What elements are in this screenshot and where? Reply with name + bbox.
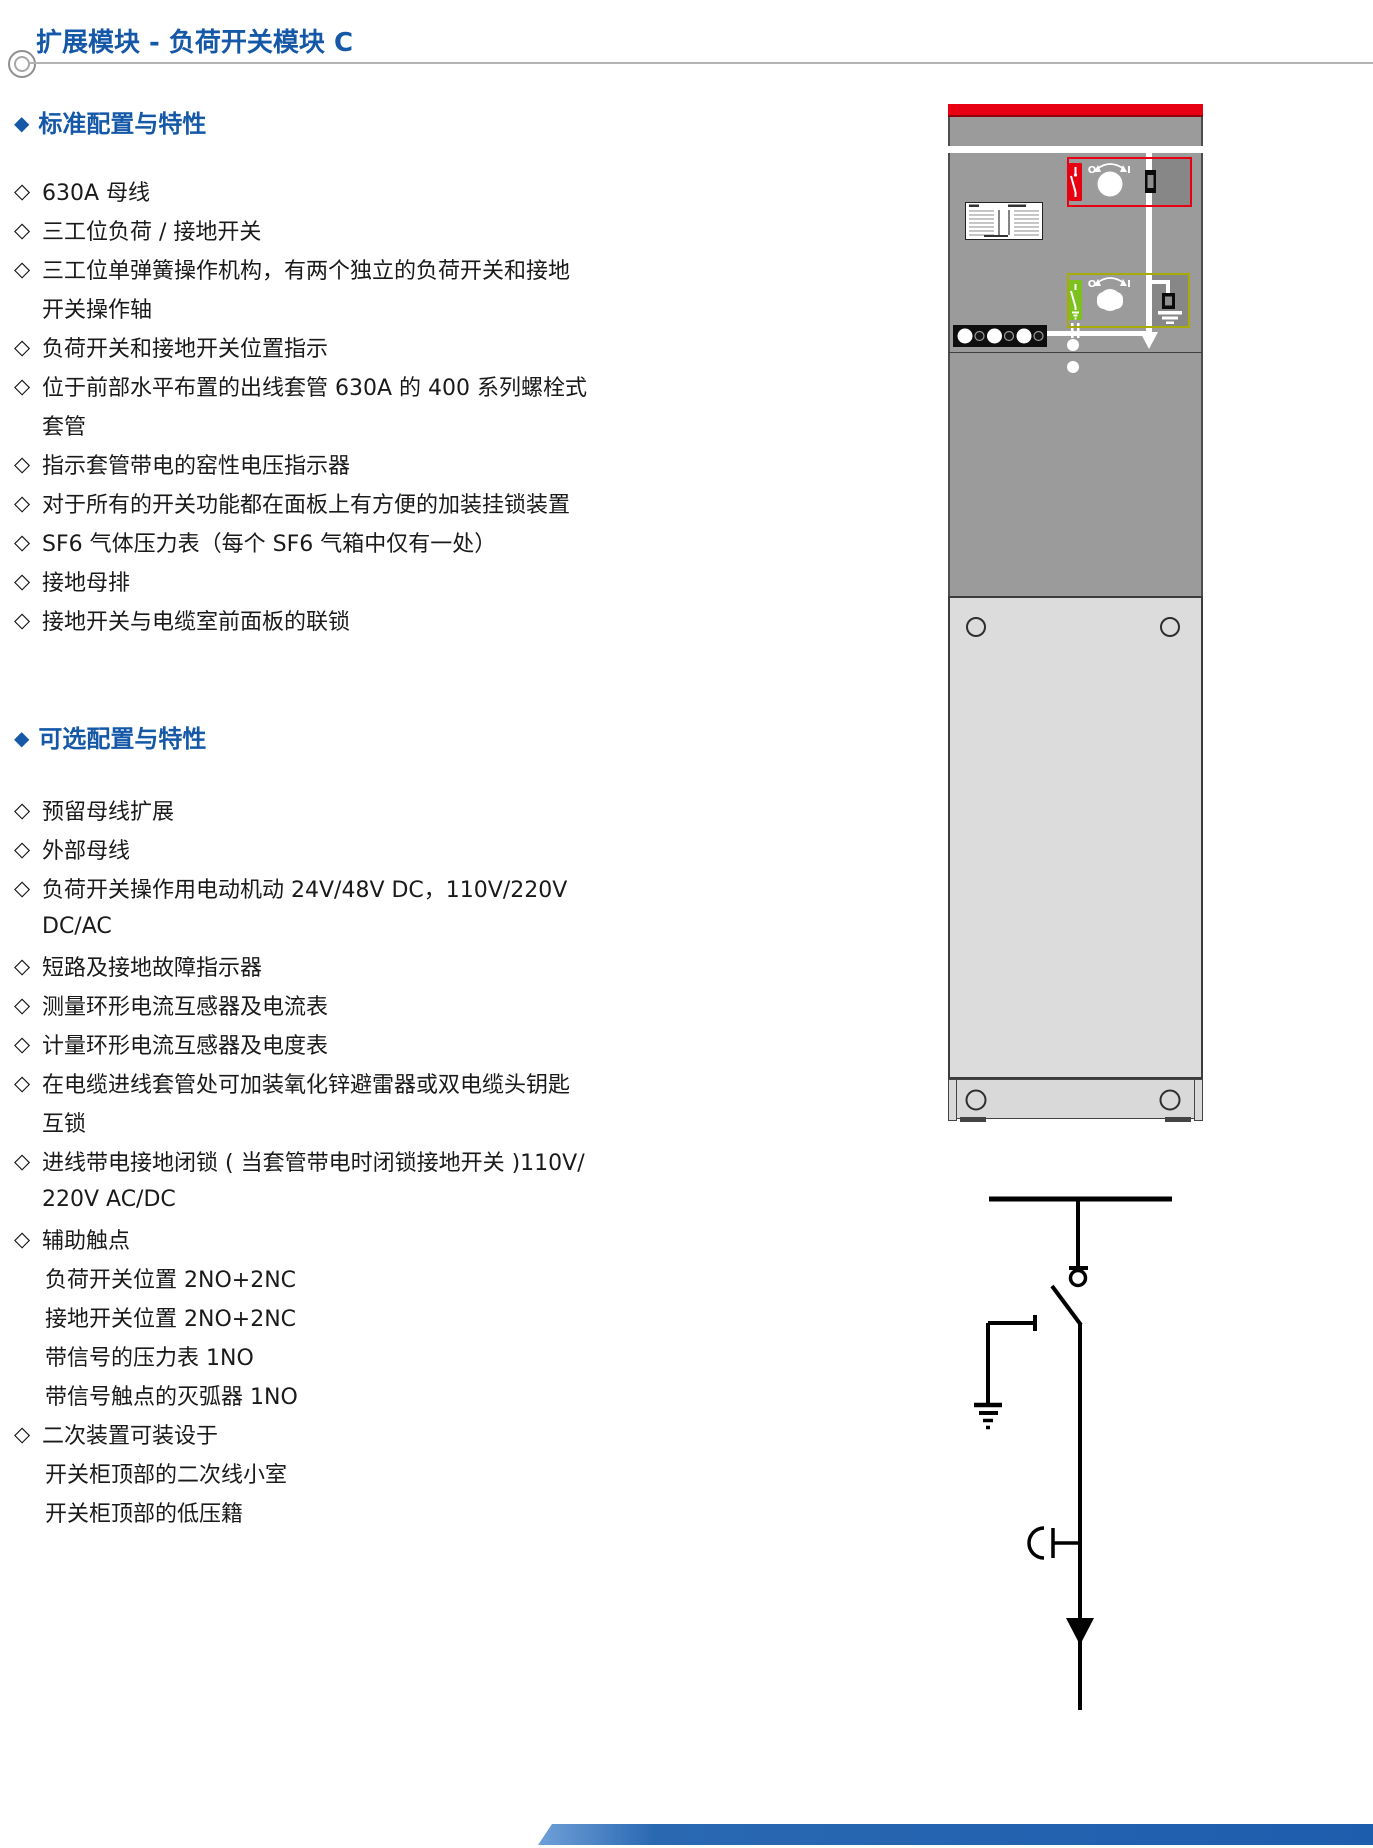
diamond-bullet-icon: ◇ (14, 569, 42, 593)
list-item-continuation: 220V AC/DC (14, 1180, 614, 1219)
list-item-text: 接地开关位置 2NO+2NC (45, 1301, 296, 1333)
list-item: ◇三工位负荷 / 接地开关 (14, 210, 614, 249)
diamond-bullet-icon: ◇ (14, 954, 42, 978)
diamond-bullet-icon: ◇ (14, 993, 42, 1017)
voltage-indicator-symbol (1029, 1528, 1080, 1558)
list-item: ◇指示套管带电的窑性电压指示器 (14, 444, 614, 483)
list-item-text: 带信号触点的灭弧器 1NO (45, 1379, 298, 1411)
diamond-bullet-icon: ◇ (14, 530, 42, 554)
list-subitem: 接地开关位置 2NO+2NC (14, 1297, 614, 1336)
list-item-continuation: 互锁 (14, 1102, 614, 1141)
list-item: ◇接地母排 (14, 561, 614, 600)
optional-feature-list: ◇预留母线扩展 ◇外部母线 ◇负荷开关操作用电动机动 24V/48V DC，11… (14, 790, 614, 1531)
list-item: ◇三工位单弹簧操作机构，有两个独立的负荷开关和接地 (14, 249, 614, 288)
diamond-bullet-icon: ◇ (14, 1032, 42, 1056)
list-item-text: DC/AC (42, 914, 112, 939)
footer-accent-bar (538, 1824, 1373, 1845)
list-item-text: 在电缆进线套管处可加装氧化锌避雷器或双电缆头钥匙 (42, 1067, 570, 1099)
earth-switch-branch (974, 1315, 1035, 1428)
cable-bushings (958, 329, 1044, 344)
list-item-text: 开关操作轴 (42, 292, 152, 324)
ring-ornament-inner-icon (14, 56, 30, 72)
list-item-text: 负荷开关位置 2NO+2NC (45, 1262, 296, 1294)
optional-heading-label: 可选配置与特性 (38, 719, 206, 754)
list-item: ◇辅助触点 (14, 1219, 614, 1258)
list-subitem: 开关柜顶部的低压籍 (14, 1492, 614, 1531)
ground-symbol-icon (974, 1405, 1002, 1428)
list-item: ◇SF6 气体压力表（每个 SF6 气箱中仅有一处） (14, 522, 614, 561)
list-item: ◇对于所有的开关功能都在面板上有方便的加装挂锁装置 (14, 483, 614, 522)
list-item-text: 负荷开关和接地开关位置指示 (42, 331, 328, 363)
list-subitem: 开关柜顶部的二次线小室 (14, 1453, 614, 1492)
standard-feature-list: ◇630A 母线 ◇三工位负荷 / 接地开关 ◇三工位单弹簧操作机构，有两个独立… (14, 171, 614, 639)
list-item: ◇计量环形电流互感器及电度表 (14, 1024, 614, 1063)
list-item-text: 开关柜顶部的二次线小室 (45, 1457, 287, 1489)
diamond-bullet-icon: ◇ (14, 876, 42, 900)
list-item: ◇短路及接地故障指示器 (14, 946, 614, 985)
list-item-text: 指示套管带电的窑性电压指示器 (42, 448, 350, 480)
list-item: ◇进线带电接地闭锁 ( 当套管带电时闭锁接地开关 )110V/ (14, 1141, 614, 1180)
list-item-text: 630A 母线 (42, 175, 150, 207)
diamond-bullet-icon: ◇ (14, 452, 42, 476)
load-switch-panel-frame (1067, 157, 1192, 207)
list-item: ◇负荷开关和接地开关位置指示 (14, 327, 614, 366)
list-item-text: 二次装置可装设于 (42, 1418, 218, 1450)
list-subitem: 负荷开关位置 2NO+2NC (14, 1258, 614, 1297)
list-item: ◇二次装置可装设于 (14, 1414, 614, 1453)
standard-heading-label: 标准配置与特性 (38, 104, 206, 139)
diamond-bullet-icon: ◇ (14, 1149, 42, 1173)
single-line-diagram (940, 1150, 1220, 1750)
list-item-text: 计量环形电流互感器及电度表 (42, 1028, 328, 1060)
list-item-text: 短路及接地故障指示器 (42, 950, 262, 982)
list-subitem: 带信号触点的灭弧器 1NO (14, 1375, 614, 1414)
list-item: ◇接地开关与电缆室前面板的联锁 (14, 600, 614, 639)
list-item-text: 接地开关与电缆室前面板的联锁 (42, 604, 350, 636)
list-item: ◇测量环形电流互感器及电流表 (14, 985, 614, 1024)
diamond-bullet-icon: ◇ (14, 257, 42, 281)
list-item-text: 对于所有的开关功能都在面板上有方便的加装挂锁装置 (42, 487, 570, 519)
diamond-bullet-icon: ◇ (14, 798, 42, 822)
list-item: ◇630A 母线 (14, 171, 614, 210)
list-item-text: SF6 气体压力表（每个 SF6 气箱中仅有一处） (42, 526, 496, 558)
catalog-page: 扩展模块 - 负荷开关模块 C ◆ 标准配置与特性 ◇630A 母线 ◇三工位负… (0, 0, 1373, 1848)
list-item-text: 开关柜顶部的低压籍 (45, 1496, 243, 1528)
nameplate-fine-print (969, 205, 1039, 238)
list-item: ◇负荷开关操作用电动机动 24V/48V DC，110V/220V (14, 868, 614, 907)
diamond-bullet-icon: ◇ (14, 837, 42, 861)
list-item-text: 进线带电接地闭锁 ( 当套管带电时闭锁接地开关 )110V/ (42, 1145, 585, 1177)
standard-section-heading: ◆ 标准配置与特性 (14, 104, 206, 139)
list-item-text: 位于前部水平布置的出线套管 630A 的 400 系列螺栓式 (42, 370, 587, 402)
list-item-text: 220V AC/DC (42, 1187, 176, 1212)
list-item-text: 互锁 (42, 1106, 86, 1138)
diamond-bullet-icon: ◇ (14, 374, 42, 398)
list-item-text: 带信号的压力表 1NO (45, 1340, 254, 1372)
list-item: ◇在电缆进线套管处可加装氧化锌避雷器或双电缆头钥匙 (14, 1063, 614, 1102)
diamond-bullet-icon: ◇ (14, 335, 42, 359)
list-item-continuation: DC/AC (14, 907, 614, 946)
list-item-text: 三工位单弹簧操作机构，有两个独立的负荷开关和接地 (42, 253, 570, 285)
page-title: 扩展模块 - 负荷开关模块 C (36, 22, 353, 59)
load-switch-symbol (1052, 1268, 1088, 1325)
list-subitem: 带信号的压力表 1NO (14, 1336, 614, 1375)
list-item-text: 辅助触点 (42, 1223, 130, 1255)
ring-ornament-icon (8, 50, 36, 78)
diamond-bullet-icon: ◇ (14, 218, 42, 242)
earth-switch-panel-frame (1067, 273, 1190, 328)
list-item-text: 套管 (42, 409, 86, 441)
list-item-continuation: 开关操作轴 (14, 288, 614, 327)
list-item-continuation: 套管 (14, 405, 614, 444)
diamond-bullet-icon: ◇ (14, 608, 42, 632)
list-item-text: 三工位负荷 / 接地开关 (42, 214, 261, 246)
cabinet-detail-overlay: O I O I (948, 104, 1203, 1122)
switchgear-cabinet-illustration: O I O I (948, 104, 1203, 1122)
optional-section-heading: ◆ 可选配置与特性 (14, 719, 206, 754)
diamond-bullet-icon: ◇ (14, 1422, 42, 1446)
diamond-bullet-icon: ◇ (14, 1227, 42, 1251)
list-item-text: 负荷开关操作用电动机动 24V/48V DC，110V/220V (42, 872, 567, 904)
diamond-bullet-icon: ◇ (14, 491, 42, 515)
list-item: ◇外部母线 (14, 829, 614, 868)
panel-screws (967, 618, 1180, 1110)
list-item-text: 测量环形电流互感器及电流表 (42, 989, 328, 1021)
section-diamond-icon: ◆ (14, 113, 29, 133)
diamond-bullet-icon: ◇ (14, 179, 42, 203)
diamond-bullet-icon: ◇ (14, 1071, 42, 1095)
list-item-text: 预留母线扩展 (42, 794, 174, 826)
list-item: ◇位于前部水平布置的出线套管 630A 的 400 系列螺栓式 (14, 366, 614, 405)
header-divider (30, 62, 1373, 64)
list-item: ◇预留母线扩展 (14, 790, 614, 829)
list-item-text: 接地母排 (42, 565, 130, 597)
flow-arrow-icon (1066, 1618, 1094, 1645)
list-item-text: 外部母线 (42, 833, 130, 865)
section-diamond-icon: ◆ (14, 728, 29, 748)
